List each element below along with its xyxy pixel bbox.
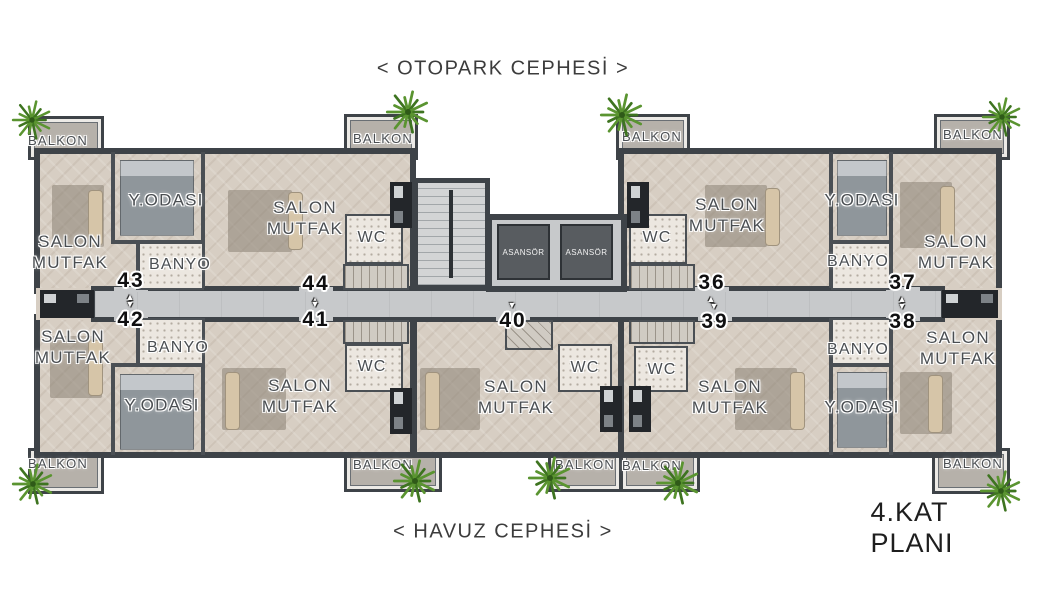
unit-number-41: 41▼ xyxy=(302,308,329,332)
plant-icon xyxy=(599,92,645,138)
plan-title: 4.KAT PLANI xyxy=(871,497,982,559)
unit-number-44: 44▲ xyxy=(302,272,329,296)
kitchen-counter xyxy=(629,386,651,432)
bottom-facade-label: < HAVUZ CEPHESİ > xyxy=(393,521,613,544)
plant-icon xyxy=(11,462,55,506)
sofa xyxy=(928,375,943,433)
stair-rail xyxy=(449,190,453,278)
banyo-label: BANYO xyxy=(147,338,209,358)
wc-label: WC xyxy=(647,360,676,380)
interior-wall xyxy=(111,152,115,244)
yodasi-label: Y.ODASI xyxy=(128,189,203,210)
wc-label: WC xyxy=(357,357,386,377)
unit-number-37: 37▲ xyxy=(889,271,916,295)
unit-number-38: 38▼ xyxy=(889,310,916,334)
unit-number-40: 40▼ xyxy=(499,309,526,333)
sofa xyxy=(790,372,805,430)
salon-mutfak-label: SALON MUTFAK xyxy=(32,231,108,274)
wc-label: WC xyxy=(642,228,671,248)
salon-mutfak-label: SALON MUTFAK xyxy=(920,327,996,370)
wc-label: WC xyxy=(357,228,386,248)
banyo-label: BANYO xyxy=(827,252,889,272)
plant-icon xyxy=(385,89,431,135)
entry-arrow-icon: ▼ xyxy=(126,299,137,309)
salon-mutfak-label: SALON MUTFAK xyxy=(35,326,111,369)
entry-arrow-icon: ▼ xyxy=(898,301,909,311)
plant-icon xyxy=(979,469,1023,513)
sofa xyxy=(765,188,780,246)
salon-mutfak-label: SALON MUTFAK xyxy=(692,376,768,419)
salon-mutfak-label: SALON MUTFAK xyxy=(918,231,994,274)
elevator: ASANSÖR xyxy=(497,224,550,280)
kitchen-counter xyxy=(390,182,412,228)
salon-mutfak-label: SALON MUTFAK xyxy=(478,376,554,419)
unit-stair xyxy=(343,264,409,290)
entry-arrow-icon: ▼ xyxy=(508,300,519,310)
plant-icon xyxy=(11,99,53,141)
plant-icon xyxy=(981,96,1023,138)
wc-label: WC xyxy=(570,358,599,378)
floor-plan-canvas: < OTOPARK CEPHESİ > < HAVUZ CEPHESİ > 4.… xyxy=(0,0,1037,589)
elevator: ASANSÖR xyxy=(560,224,613,280)
unit-stair xyxy=(629,320,695,344)
unit-number-43: 43▲ xyxy=(117,269,144,293)
banyo-label: BANYO xyxy=(827,340,889,360)
kitchen-counter xyxy=(627,182,649,228)
sofa xyxy=(225,372,240,430)
unit-number-39: 39▼ xyxy=(701,310,728,334)
entry-arrow-icon: ▼ xyxy=(710,301,721,311)
yodasi-label: Y.ODASI xyxy=(124,394,199,415)
entry-arrow-icon: ▼ xyxy=(311,299,322,309)
unit-number-36: 36▲ xyxy=(698,271,725,295)
yodasi-label: Y.ODASI xyxy=(824,396,899,417)
plant-icon xyxy=(392,458,438,504)
plant-icon xyxy=(527,455,573,501)
banyo-label: BANYO xyxy=(149,255,211,275)
unit-stair xyxy=(343,320,409,344)
kitchen-counter xyxy=(40,290,94,318)
unit-number-42: 42▼ xyxy=(117,308,144,332)
kitchen-counter xyxy=(942,290,998,318)
salon-mutfak-label: SALON MUTFAK xyxy=(267,197,343,240)
sofa xyxy=(425,372,440,430)
top-facade-label: < OTOPARK CEPHESİ > xyxy=(377,58,629,81)
yodasi-label: Y.ODASI xyxy=(824,189,899,210)
interior-wall xyxy=(111,363,115,455)
rug xyxy=(900,372,952,434)
salon-mutfak-label: SALON MUTFAK xyxy=(262,375,338,418)
salon-mutfak-label: SALON MUTFAK xyxy=(689,194,765,237)
kitchen-counter xyxy=(390,388,412,434)
kitchen-counter xyxy=(600,386,622,432)
plant-icon xyxy=(655,460,701,506)
unit-stair xyxy=(629,264,695,290)
